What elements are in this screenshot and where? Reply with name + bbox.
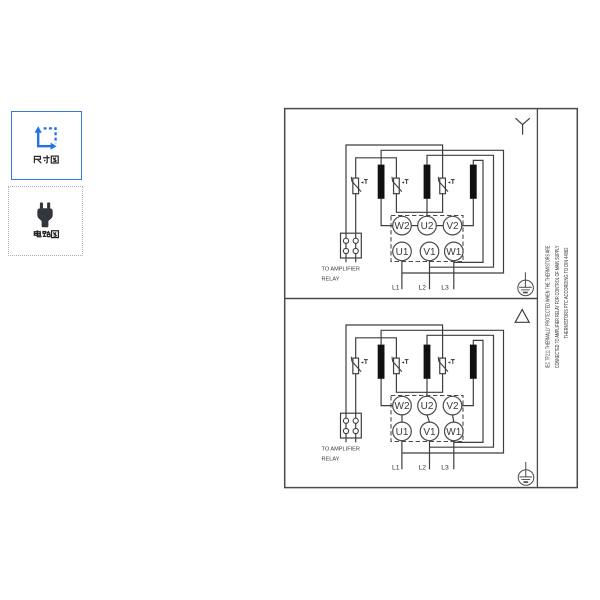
svg-text:IEC TP211 THERMALLY PROTECTED: IEC TP211 THERMALLY PROTECTED WHEN THE T… xyxy=(546,245,552,368)
svg-text:CONNECTED TO AMPLIFIER RELAY F: CONNECTED TO AMPLIFIER RELAY FOR CONTROL… xyxy=(555,245,561,368)
svg-text:THERMISTORS PTC ACCORDING TO D: THERMISTORS PTC ACCORDING TO DIN 44082 xyxy=(564,248,570,339)
